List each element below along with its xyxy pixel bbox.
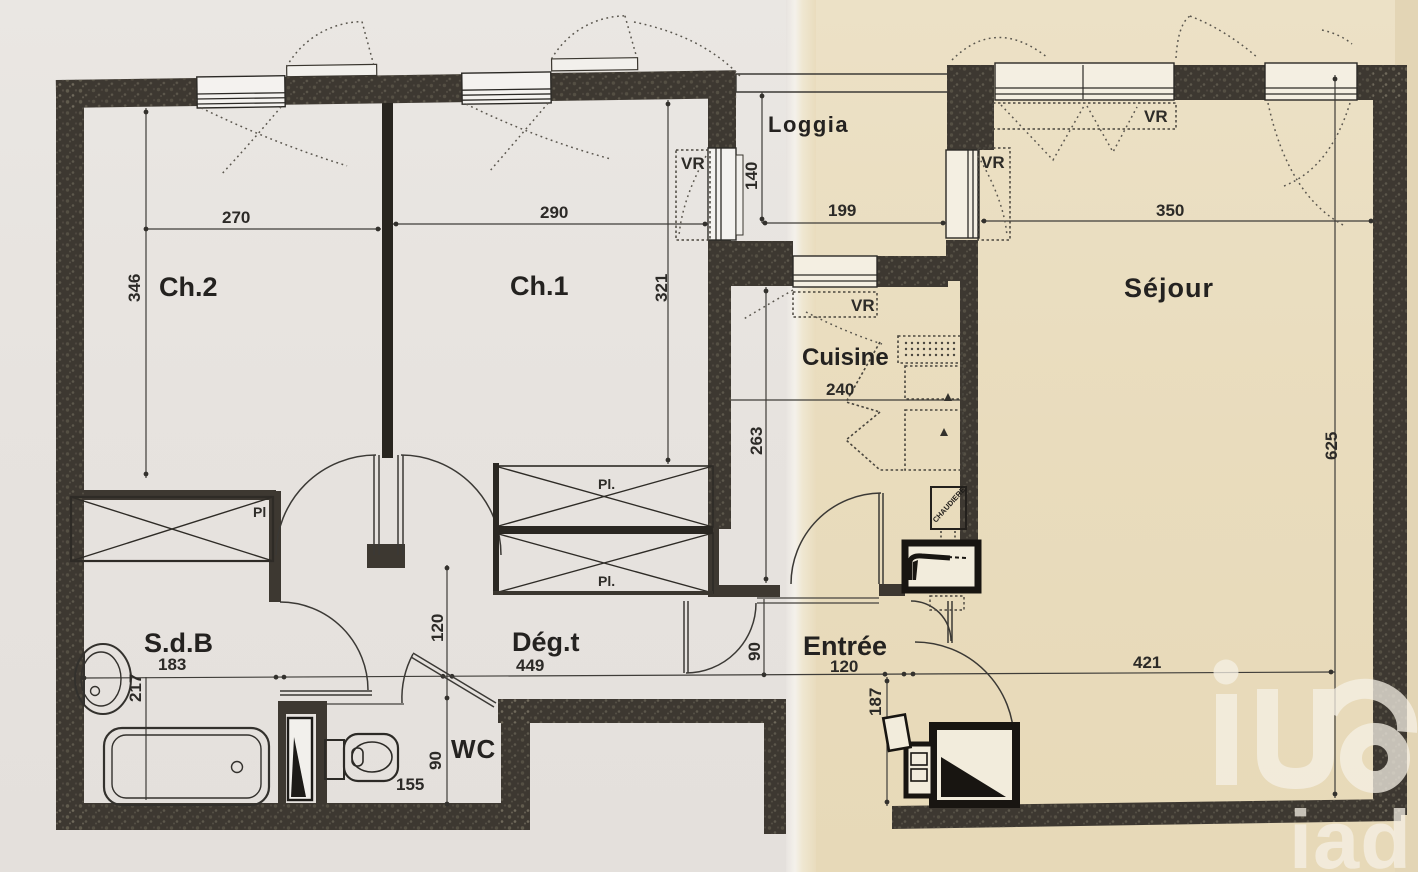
svg-text:S.d.B: S.d.B: [144, 628, 213, 658]
svg-text:270: 270: [222, 208, 250, 227]
svg-text:240: 240: [826, 380, 854, 399]
svg-text:iad: iad: [1289, 793, 1412, 872]
svg-text:Ch.1: Ch.1: [510, 271, 569, 301]
svg-text:Pl.: Pl.: [598, 573, 615, 589]
svg-text:421: 421: [1133, 653, 1161, 672]
svg-text:350: 350: [1156, 201, 1184, 220]
svg-text:120: 120: [830, 657, 858, 676]
svg-text:Ch.2: Ch.2: [159, 272, 218, 302]
svg-text:140: 140: [742, 162, 761, 190]
svg-text:Cuisine: Cuisine: [802, 344, 889, 371]
svg-text:346: 346: [125, 274, 144, 302]
svg-text:VR: VR: [681, 154, 705, 173]
svg-text:90: 90: [426, 751, 445, 770]
svg-text:90: 90: [745, 642, 764, 661]
svg-text:449: 449: [516, 656, 544, 675]
svg-text:Séjour: Séjour: [1124, 273, 1214, 303]
svg-text:120: 120: [428, 614, 447, 642]
svg-text:217: 217: [126, 674, 145, 702]
svg-text:Pl: Pl: [253, 504, 266, 520]
svg-text:263: 263: [747, 427, 766, 455]
svg-text:Pl.: Pl.: [598, 476, 615, 492]
svg-text:290: 290: [540, 203, 568, 222]
svg-text:WC: WC: [451, 734, 496, 764]
svg-text:183: 183: [158, 655, 186, 674]
svg-text:VR: VR: [851, 296, 875, 315]
svg-text:321: 321: [652, 274, 671, 302]
svg-text:199: 199: [828, 201, 856, 220]
svg-text:Dég.t: Dég.t: [512, 627, 580, 657]
svg-text:VR: VR: [981, 153, 1005, 172]
svg-text:Loggia: Loggia: [768, 112, 849, 137]
svg-text:VR: VR: [1144, 107, 1168, 126]
svg-text:187: 187: [866, 688, 885, 716]
svg-text:625: 625: [1322, 432, 1341, 460]
svg-text:155: 155: [396, 775, 424, 794]
